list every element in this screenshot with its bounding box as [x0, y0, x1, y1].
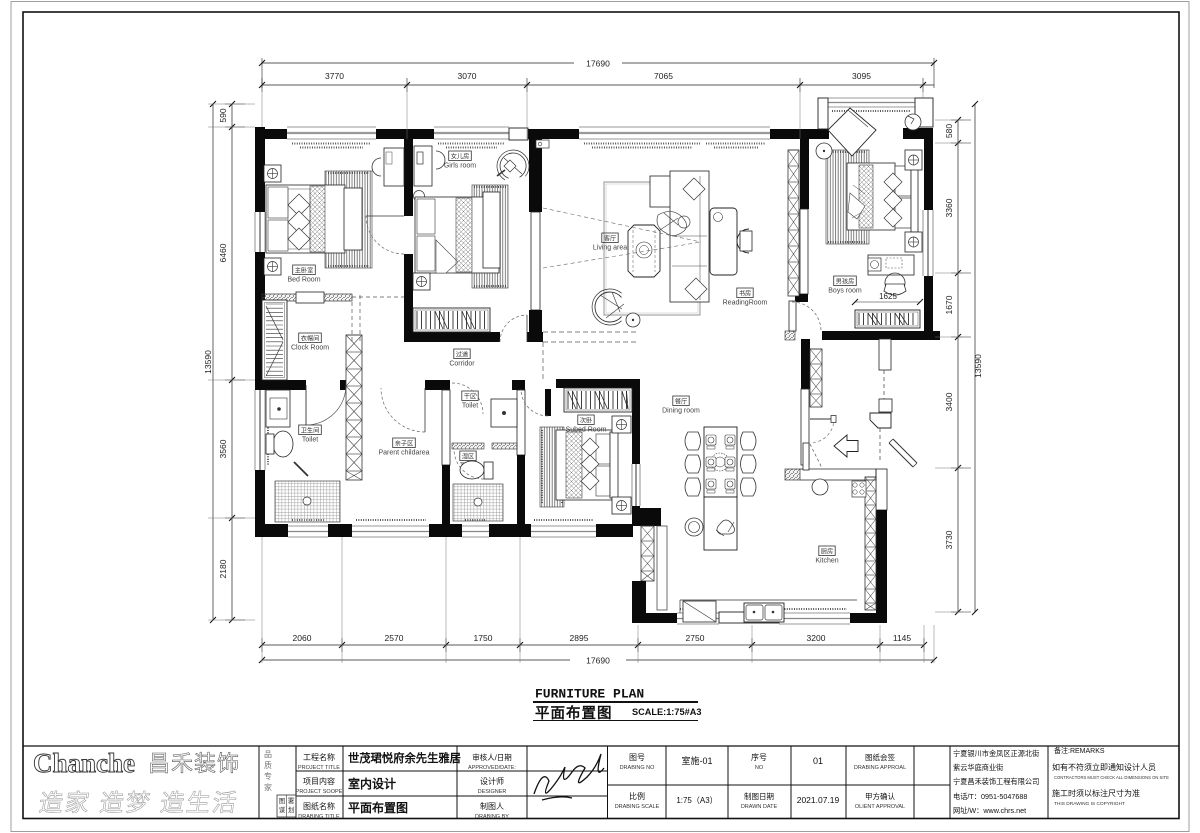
- svg-text:3200: 3200: [807, 633, 826, 643]
- svg-text:CONTRACTORS MUST CHECK ALL DIM: CONTRACTORS MUST CHECK ALL DIMENSIONS ON…: [1054, 775, 1169, 780]
- svg-text:NO: NO: [755, 765, 764, 771]
- svg-text:Bed Room: Bed Room: [287, 277, 320, 284]
- svg-text:主卧室: 主卧室: [295, 267, 314, 275]
- svg-text:如有不符须立即通知设计人员: 如有不符须立即通知设计人员: [1052, 762, 1156, 772]
- svg-text:Corridor: Corridor: [449, 361, 475, 368]
- svg-text:项目内容: 项目内容: [303, 776, 335, 786]
- svg-text:Girls room: Girls room: [444, 163, 476, 170]
- svg-text:书房: 书房: [739, 290, 751, 298]
- svg-text:谋: 谋: [279, 806, 286, 814]
- svg-text:造家 造梦 造生活: 造家 造梦 造生活: [37, 790, 240, 817]
- svg-text:2180: 2180: [218, 559, 228, 578]
- svg-text:审核人/日期: 审核人/日期: [472, 752, 512, 762]
- svg-text:1:75（A3）: 1:75（A3）: [676, 796, 717, 805]
- svg-text:卫生间: 卫生间: [301, 427, 320, 435]
- svg-text:2750: 2750: [686, 633, 705, 643]
- svg-text:APPROVED/DATE:: APPROVED/DATE:: [468, 765, 516, 771]
- svg-text:平面布置图: 平面布置图: [348, 800, 408, 815]
- svg-text:7065: 7065: [654, 71, 673, 81]
- svg-text:17690: 17690: [586, 656, 610, 666]
- svg-text:2021.07.19: 2021.07.19: [797, 795, 840, 805]
- svg-text:甲方确认: 甲方确认: [865, 791, 895, 801]
- svg-text:宁夏银川市金凤区正源北街: 宁夏银川市金凤区正源北街: [953, 749, 1039, 758]
- svg-text:Kitchen: Kitchen: [815, 558, 838, 565]
- svg-text:质: 质: [264, 760, 272, 770]
- svg-text:男孩房: 男孩房: [836, 278, 855, 286]
- svg-text:客厅: 客厅: [604, 235, 616, 243]
- svg-text:衣帽间: 衣帽间: [301, 335, 320, 343]
- svg-text:DRABING BY: DRABING BY: [475, 814, 509, 820]
- svg-text:过道: 过道: [456, 351, 468, 359]
- svg-text:DRAWN DATE: DRAWN DATE: [741, 804, 778, 810]
- svg-text:图纸名称: 图纸名称: [303, 801, 335, 811]
- svg-text:设计师: 设计师: [480, 776, 504, 786]
- svg-text:施工时须以标注尺寸为准: 施工时须以标注尺寸为准: [1052, 788, 1140, 798]
- svg-text:Toilet: Toilet: [462, 403, 478, 410]
- svg-text:Toilet: Toilet: [302, 437, 318, 444]
- svg-text:1750: 1750: [474, 633, 493, 643]
- svg-text:13590: 13590: [973, 354, 983, 378]
- svg-text:2570: 2570: [385, 633, 404, 643]
- svg-text:图: 图: [279, 797, 286, 805]
- svg-text:湿区: 湿区: [462, 453, 474, 461]
- svg-text:Subed Room: Subed Room: [566, 427, 607, 434]
- svg-text:2895: 2895: [570, 633, 589, 643]
- svg-text:Boys room: Boys room: [828, 288, 862, 295]
- svg-text:署: 署: [288, 797, 295, 805]
- svg-text:3560: 3560: [218, 439, 228, 458]
- svg-text:宁夏昌禾装饰工程有限公司: 宁夏昌禾装饰工程有限公司: [953, 777, 1039, 786]
- svg-text:SCALE:1:75#A3: SCALE:1:75#A3: [632, 707, 701, 717]
- svg-text:世茂珺悦府余先生雅居: 世茂珺悦府余先生雅居: [348, 751, 461, 765]
- svg-text:OLIENT APPROVAL: OLIENT APPROVAL: [855, 804, 905, 810]
- svg-text:备注:REMARKS: 备注:REMARKS: [1054, 746, 1105, 755]
- svg-text:网址/W：www.chrs.net: 网址/W：www.chrs.net: [953, 806, 1026, 815]
- svg-text:DRABING SCALE: DRABING SCALE: [615, 804, 660, 810]
- svg-text:Living area: Living area: [593, 245, 627, 252]
- svg-text:DRABING TITLE: DRABING TITLE: [298, 814, 340, 820]
- svg-text:餐厅: 餐厅: [675, 398, 687, 406]
- svg-text:次卧: 次卧: [580, 417, 592, 425]
- svg-text:图纸会签: 图纸会签: [865, 752, 895, 762]
- svg-text:昌禾装饰: 昌禾装饰: [148, 751, 240, 776]
- svg-text:品: 品: [264, 750, 272, 759]
- svg-text:DESIGNER: DESIGNER: [478, 789, 507, 795]
- svg-text:紫云华庭商业街: 紫云华庭商业街: [953, 763, 1003, 772]
- svg-text:1670: 1670: [944, 295, 954, 314]
- svg-text:01: 01: [813, 756, 823, 766]
- svg-text:厨房: 厨房: [821, 548, 833, 556]
- svg-text:工程名称: 工程名称: [303, 752, 335, 762]
- svg-text:2060: 2060: [293, 633, 312, 643]
- svg-text:Dining room: Dining room: [662, 408, 700, 415]
- svg-text:PROJECT TITLE: PROJECT TITLE: [298, 765, 340, 771]
- svg-text:3770: 3770: [325, 71, 344, 81]
- svg-text:家: 家: [264, 782, 272, 792]
- svg-text:1145: 1145: [893, 633, 912, 643]
- svg-text:3360: 3360: [944, 198, 954, 217]
- svg-text:Chanche: Chanche: [33, 748, 135, 778]
- svg-text:制图人: 制图人: [480, 801, 504, 811]
- svg-text:Clock Room: Clock Room: [291, 345, 329, 352]
- svg-text:13590: 13590: [203, 350, 213, 374]
- svg-text:590: 590: [218, 108, 228, 122]
- svg-text:室内设计: 室内设计: [348, 776, 396, 791]
- svg-text:电话/T：0951-5047688: 电话/T：0951-5047688: [953, 792, 1027, 801]
- svg-text:序号: 序号: [751, 752, 767, 762]
- svg-text:干区: 干区: [464, 394, 476, 401]
- svg-text:THIS DRAWING IS COPYRIGHT: THIS DRAWING IS COPYRIGHT: [1054, 801, 1125, 807]
- svg-text:3095: 3095: [852, 71, 871, 81]
- svg-text:6460: 6460: [218, 243, 228, 262]
- svg-text:室施-01: 室施-01: [681, 755, 712, 766]
- svg-text:图号: 图号: [629, 753, 645, 762]
- svg-text:3730: 3730: [944, 530, 954, 549]
- svg-text:专: 专: [264, 771, 272, 781]
- svg-text:FURNITURE PLAN: FURNITURE PLAN: [535, 687, 644, 702]
- svg-text:17690: 17690: [586, 59, 610, 69]
- svg-text:3070: 3070: [458, 71, 477, 81]
- svg-text:DRABING APPROAL: DRABING APPROAL: [854, 765, 906, 771]
- svg-text:580: 580: [944, 124, 954, 138]
- svg-text:DRABING NO: DRABING NO: [620, 765, 656, 771]
- svg-text:比例: 比例: [629, 791, 645, 801]
- svg-text:制图日期: 制图日期: [744, 791, 774, 801]
- svg-text:Parent childarea: Parent childarea: [379, 450, 430, 457]
- svg-text:女儿房: 女儿房: [451, 153, 470, 161]
- svg-text:PROJECT SOOPE: PROJECT SOOPE: [296, 789, 343, 795]
- svg-text:1625: 1625: [879, 292, 897, 301]
- svg-text:平面布置图: 平面布置图: [535, 704, 613, 722]
- svg-text:亲子区: 亲子区: [395, 440, 414, 448]
- svg-text:划: 划: [288, 805, 295, 814]
- svg-text:3400: 3400: [944, 392, 954, 411]
- svg-text:ReadingRoom: ReadingRoom: [723, 300, 768, 307]
